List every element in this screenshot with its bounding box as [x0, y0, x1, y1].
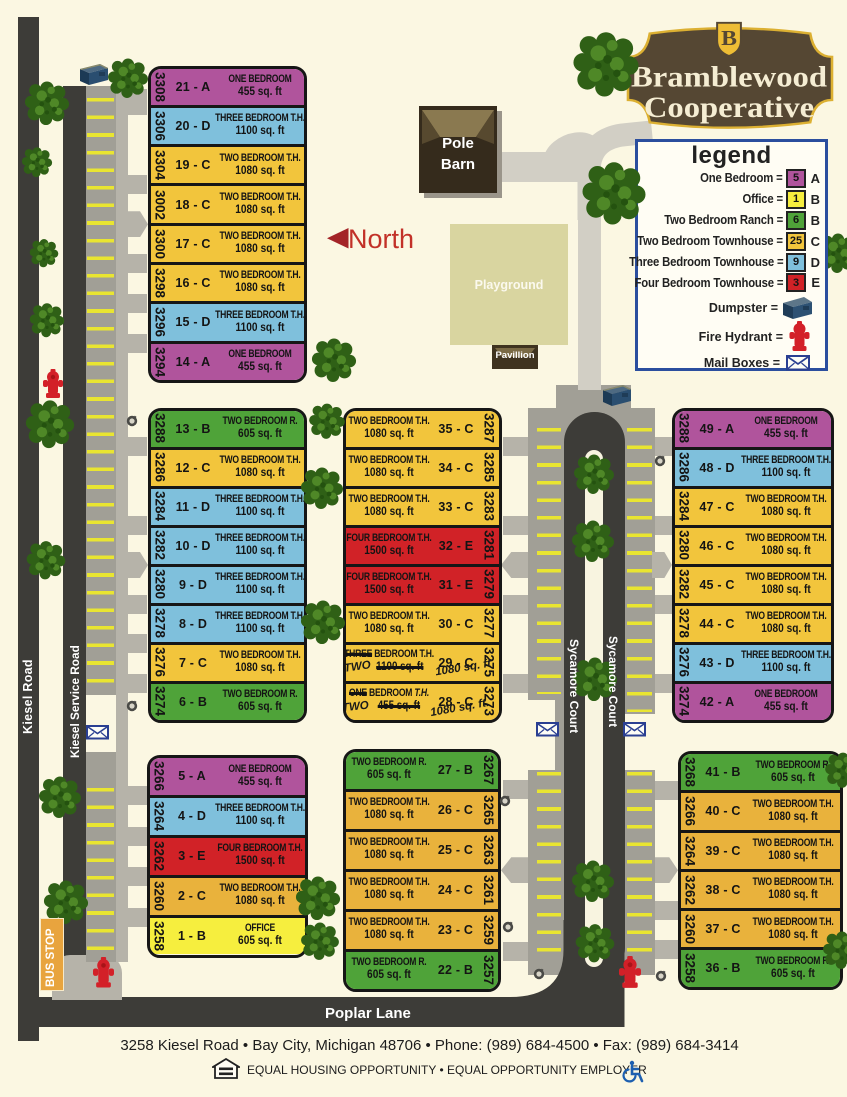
- svg-text:B: B: [721, 26, 737, 50]
